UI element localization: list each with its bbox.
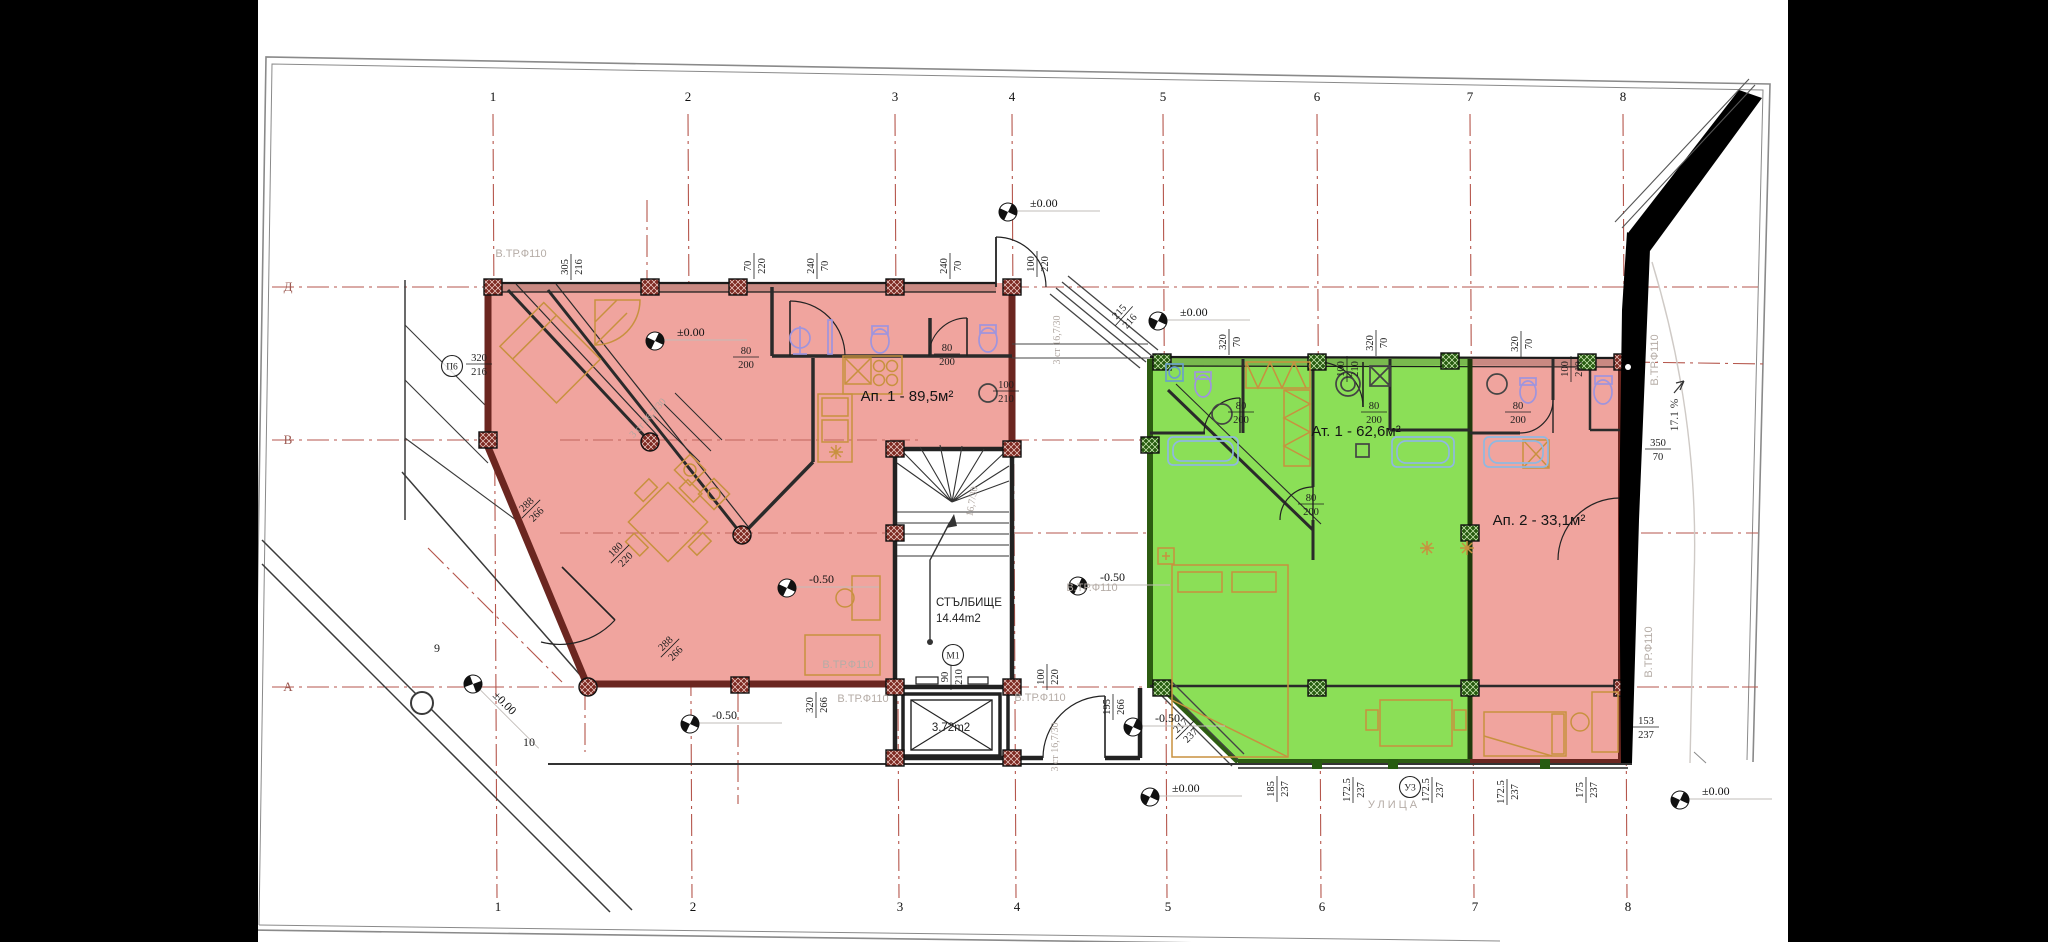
ramp-slope-label: 17.1 % xyxy=(1669,398,1681,431)
grid-row-letter-Д: Д xyxy=(284,279,293,294)
pipe-label: В.ТР.Ф110 xyxy=(822,659,873,671)
grid-number-top: 7 xyxy=(1467,89,1474,104)
floor-plan-canvas: 1122334455667788ДВА xyxy=(0,0,2048,942)
svg-text:220: 220 xyxy=(1050,669,1061,685)
grid-row-letter-А: А xyxy=(283,679,293,694)
grid-number-bottom: 6 xyxy=(1319,899,1326,914)
svg-text:305: 305 xyxy=(560,259,571,275)
svg-text:153: 153 xyxy=(1638,716,1654,727)
svg-text:237: 237 xyxy=(1435,782,1446,798)
svg-text:70: 70 xyxy=(1232,337,1243,348)
pipe-label: В.ТР.Ф110 xyxy=(1649,334,1661,385)
svg-text:266: 266 xyxy=(819,697,830,713)
svg-text:100: 100 xyxy=(1336,361,1347,377)
svg-text:320: 320 xyxy=(1365,335,1376,351)
pipe-label: В.ТР.Ф110 xyxy=(837,693,888,705)
svg-text:70: 70 xyxy=(743,261,754,272)
svg-text:172.5: 172.5 xyxy=(1342,778,1353,802)
svg-text:320: 320 xyxy=(805,697,816,713)
grid-number-bottom: 4 xyxy=(1014,899,1021,914)
svg-text:210: 210 xyxy=(1350,361,1361,377)
grid-number-top: 3 xyxy=(892,89,899,104)
svg-text:200: 200 xyxy=(1303,507,1319,518)
level-value: -0.50 xyxy=(712,708,737,722)
svg-text:320: 320 xyxy=(1218,334,1229,350)
grid-number-bottom: 5 xyxy=(1165,899,1172,914)
grid-number-bottom: 3 xyxy=(897,899,904,914)
svg-text:У3: У3 xyxy=(1404,784,1416,794)
pipe-label: В.ТР.Ф110 xyxy=(1066,582,1117,594)
apartment-1-label: Ап. 1 - 89,5м² xyxy=(861,388,954,405)
site-point-10: 10 xyxy=(523,735,535,749)
site-point-9: 9 xyxy=(434,641,440,655)
svg-text:80: 80 xyxy=(741,346,752,357)
pipe-label: В.ТР.Ф110 xyxy=(1643,626,1655,677)
stair-note: 3 ст 16,7/30 xyxy=(1052,315,1063,364)
level-value: ±0.00 xyxy=(1702,784,1730,798)
svg-text:237: 237 xyxy=(1589,782,1600,798)
svg-text:320: 320 xyxy=(471,353,487,364)
grid-number-bottom: 1 xyxy=(495,899,502,914)
level-value: ±0.00 xyxy=(1172,781,1200,795)
level-value: ±0.00 xyxy=(1180,305,1208,319)
svg-text:237: 237 xyxy=(1638,730,1654,741)
screenshot-stage: 1122334455667788ДВА xyxy=(0,0,2048,942)
stairwell-area: 14.44m2 xyxy=(936,613,981,625)
svg-text:237: 237 xyxy=(1356,782,1367,798)
svg-text:70: 70 xyxy=(953,261,964,272)
level-value: -0.50 xyxy=(1155,711,1180,725)
grid-number-bottom: 7 xyxy=(1472,899,1479,914)
atelier-1-label: Ат. 1 - 62,6м² xyxy=(1311,423,1400,440)
svg-text:80: 80 xyxy=(1369,401,1380,412)
axis-tag-П6: П6 xyxy=(442,356,463,377)
svg-text:172.5: 172.5 xyxy=(1496,780,1507,804)
letterbox-right xyxy=(1788,0,2048,942)
svg-text:70: 70 xyxy=(1653,452,1664,463)
svg-text:175: 175 xyxy=(1575,782,1586,798)
grid-number-top: 6 xyxy=(1314,89,1321,104)
pipe-label: В.ТР.Ф110 xyxy=(1014,692,1065,704)
grid-number-top: 1 xyxy=(490,89,497,104)
wall-marker-dot xyxy=(1625,364,1631,370)
svg-text:80: 80 xyxy=(1306,493,1317,504)
svg-text:185: 185 xyxy=(1266,781,1277,797)
svg-text:80: 80 xyxy=(1236,401,1247,412)
grid-number-bottom: 8 xyxy=(1625,899,1632,914)
grid-number-top: 8 xyxy=(1620,89,1627,104)
elevator-area: 3.72m2 xyxy=(932,722,970,734)
grid-number-bottom: 2 xyxy=(690,899,697,914)
grid-row-letter-В: В xyxy=(284,432,293,447)
svg-text:266: 266 xyxy=(1116,699,1127,715)
svg-text:200: 200 xyxy=(1366,415,1382,426)
svg-text:М1: М1 xyxy=(946,652,959,662)
svg-text:90: 90 xyxy=(940,672,951,683)
svg-text:210: 210 xyxy=(1574,361,1585,377)
svg-text:210: 210 xyxy=(954,669,965,685)
svg-text:210: 210 xyxy=(998,394,1014,405)
svg-text:172.5: 172.5 xyxy=(1421,778,1432,802)
svg-text:70: 70 xyxy=(1524,339,1535,350)
svg-text:80: 80 xyxy=(1513,401,1524,412)
svg-text:350: 350 xyxy=(1650,438,1666,449)
svg-text:216: 216 xyxy=(471,367,487,378)
svg-text:П6: П6 xyxy=(446,363,458,373)
svg-text:200: 200 xyxy=(738,360,754,371)
svg-text:220: 220 xyxy=(757,258,768,274)
stairwell-label: СТЪЛБИЩЕ xyxy=(936,597,1002,609)
street-label: УЛИЦА xyxy=(1368,799,1420,811)
svg-text:220: 220 xyxy=(1040,256,1051,272)
svg-text:100: 100 xyxy=(1560,361,1571,377)
level-value: ±0.00 xyxy=(677,325,705,339)
axis-tag-М1: М1 xyxy=(943,645,964,666)
svg-text:200: 200 xyxy=(1510,415,1526,426)
pipe-label: В.ТР.Ф110 xyxy=(495,248,546,260)
svg-text:100: 100 xyxy=(1026,256,1037,272)
level-value: -0.50 xyxy=(809,572,834,586)
svg-text:70: 70 xyxy=(820,261,831,272)
svg-text:237: 237 xyxy=(1280,781,1291,797)
svg-text:200: 200 xyxy=(1233,415,1249,426)
svg-text:237: 237 xyxy=(1510,784,1521,800)
axis-tag-У3: У3 xyxy=(1400,777,1421,798)
svg-text:195: 195 xyxy=(1102,699,1113,715)
svg-text:216: 216 xyxy=(574,259,585,275)
svg-text:70: 70 xyxy=(1379,338,1390,349)
letterbox-left xyxy=(0,0,258,942)
svg-text:80: 80 xyxy=(942,343,953,354)
apartment-2-region xyxy=(1470,359,1620,762)
svg-text:240: 240 xyxy=(939,258,950,274)
svg-text:240: 240 xyxy=(806,258,817,274)
svg-text:100: 100 xyxy=(1036,669,1047,685)
level-value: ±0.00 xyxy=(1030,196,1058,210)
grid-number-top: 5 xyxy=(1160,89,1167,104)
svg-text:200: 200 xyxy=(939,357,955,368)
svg-text:100: 100 xyxy=(998,380,1014,391)
svg-text:320: 320 xyxy=(1510,336,1521,352)
apartment-2-label: Ап. 2 - 33,1м² xyxy=(1493,512,1586,529)
stair-note: 3 ст 16,7/30 xyxy=(1050,722,1061,771)
grid-number-top: 2 xyxy=(685,89,692,104)
grid-number-top: 4 xyxy=(1009,89,1016,104)
